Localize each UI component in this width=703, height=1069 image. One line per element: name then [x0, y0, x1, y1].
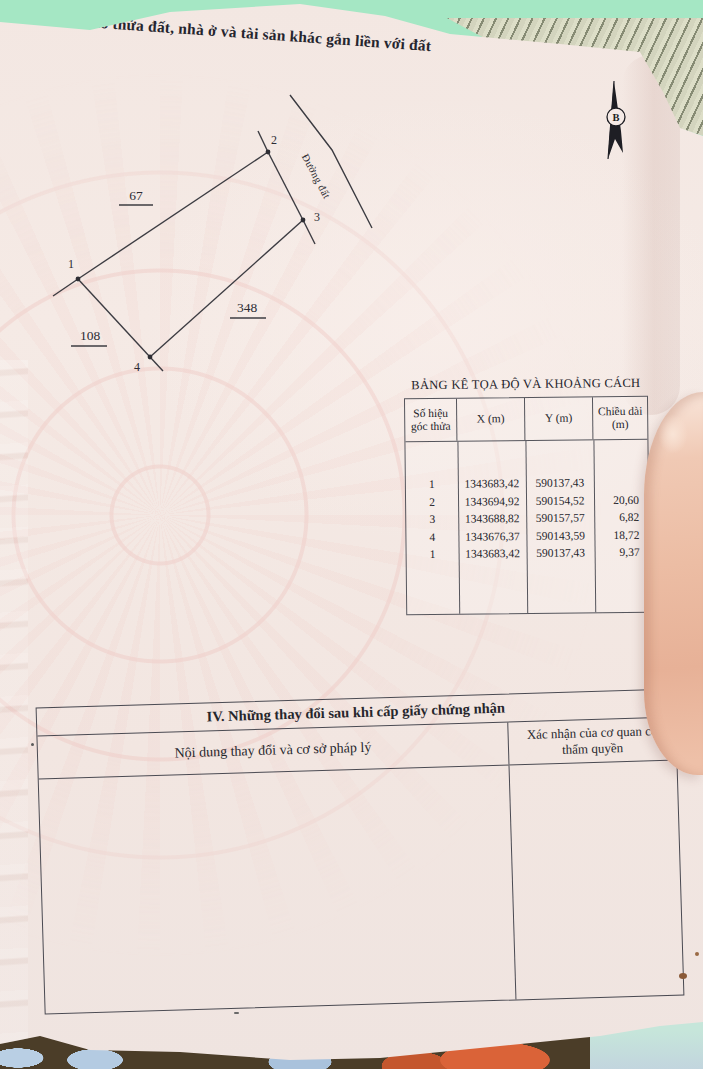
certificate-page: III. Sơ đồ thửa đất, nhà ở và tài sản kh…	[0, 0, 703, 1069]
photo-of-certificate: III. Sơ đồ thửa đất, nhà ở và tài sản kh…	[0, 0, 703, 1069]
edge-2-3	[268, 152, 303, 220]
page-crease	[0, 360, 28, 1060]
vertex-label-3: 3	[314, 210, 320, 224]
edge-extension-4	[150, 357, 163, 371]
stain	[31, 743, 34, 746]
coordinate-table: Số hiệu góc thửa X (m) Y (m) Chiều dài (…	[404, 396, 650, 616]
vertex-label-2: 2	[271, 133, 277, 147]
vertex-dot-1	[76, 277, 81, 282]
parcel-diagram: 1 2 3 4 67 348 108 Đường đất	[20, 70, 400, 390]
cell-length: 9,37	[595, 546, 649, 559]
coordinate-table-body: 11343683,42590137,43 21343694,92590154,5…	[405, 440, 649, 615]
cell-y: 590157,57	[526, 511, 594, 524]
col-header-length: Chiều dài (m)	[593, 397, 647, 440]
cell-y: 590154,52	[526, 494, 594, 507]
table-row: 11343683,42590137,43	[406, 476, 648, 491]
cell-x: 1343676,37	[458, 530, 526, 543]
cell-x: 1343683,42	[459, 547, 527, 560]
coordinate-table-title: BẢNG KÊ TỌA ĐỘ VÀ KHOẢNG CÁCH	[404, 376, 648, 394]
cell-y: 590137,43	[526, 476, 594, 489]
section-iv-table: IV. Những thay đổi sau khi cấp giấy chứn…	[36, 689, 685, 1015]
edge-extension-1	[53, 279, 78, 296]
table-gridline	[525, 441, 528, 613]
table-gridline	[457, 442, 460, 614]
edge-extension-2	[258, 131, 268, 152]
cell-length	[594, 476, 648, 489]
cell-length: 20,60	[594, 493, 648, 506]
cell-length: 18,72	[594, 528, 648, 541]
edge-3-4	[150, 220, 303, 357]
vertex-label-4: 4	[134, 360, 140, 374]
cell-length: 6,82	[594, 511, 648, 524]
cell-point: 1	[406, 478, 458, 491]
cell-x: 1343688,82	[458, 512, 526, 525]
cell-x: 1343683,42	[458, 477, 526, 490]
road-label: Đường đất	[300, 152, 333, 201]
col-header-point: Số hiệu góc thửa	[405, 399, 457, 442]
fingertip-highlight	[658, 414, 688, 454]
cell-x: 1343694,92	[458, 495, 526, 508]
vertex-label-1: 1	[68, 257, 74, 271]
cell-point: 2	[406, 495, 458, 508]
vertex-dot-4	[148, 355, 153, 360]
edge-1-2	[78, 152, 268, 279]
cell-y: 590143,59	[526, 529, 594, 542]
table-gridline	[593, 440, 596, 612]
cell-point: 1	[407, 548, 459, 561]
stain	[234, 1012, 239, 1014]
vertex-dot-3	[301, 218, 306, 223]
stain	[679, 973, 687, 979]
col-header-x: X (m)	[457, 398, 525, 441]
north-arrow: B	[595, 73, 640, 168]
col-header-y: Y (m)	[525, 397, 593, 440]
cell-point: 4	[406, 530, 458, 543]
table-row: 21343694,92590154,5220,60	[406, 493, 648, 508]
measure-label-108: 108	[80, 328, 101, 343]
table-row: 31343688,82590157,576,82	[406, 511, 648, 526]
section-iv-body-right	[509, 761, 684, 1000]
north-label: B	[612, 112, 619, 123]
coordinate-table-block: BẢNG KÊ TỌA ĐỘ VÀ KHOẢNG CÁCH Số hiệu gó…	[404, 376, 650, 616]
cell-point: 3	[406, 513, 458, 526]
cell-y: 590137,43	[527, 546, 595, 559]
table-row: 11343683,42590137,439,37	[407, 546, 649, 561]
finger-holding-page	[644, 392, 703, 775]
measure-label-348: 348	[237, 300, 258, 315]
coordinate-table-header: Số hiệu góc thửa X (m) Y (m) Chiều dài (…	[405, 397, 647, 443]
section-iv-body-left	[39, 766, 516, 1014]
section-iv-body	[39, 761, 684, 1014]
stain	[695, 952, 699, 956]
table-row: 41343676,37590143,5918,72	[406, 528, 648, 543]
measure-label-67: 67	[129, 188, 143, 203]
vertex-dot-2	[266, 150, 271, 155]
